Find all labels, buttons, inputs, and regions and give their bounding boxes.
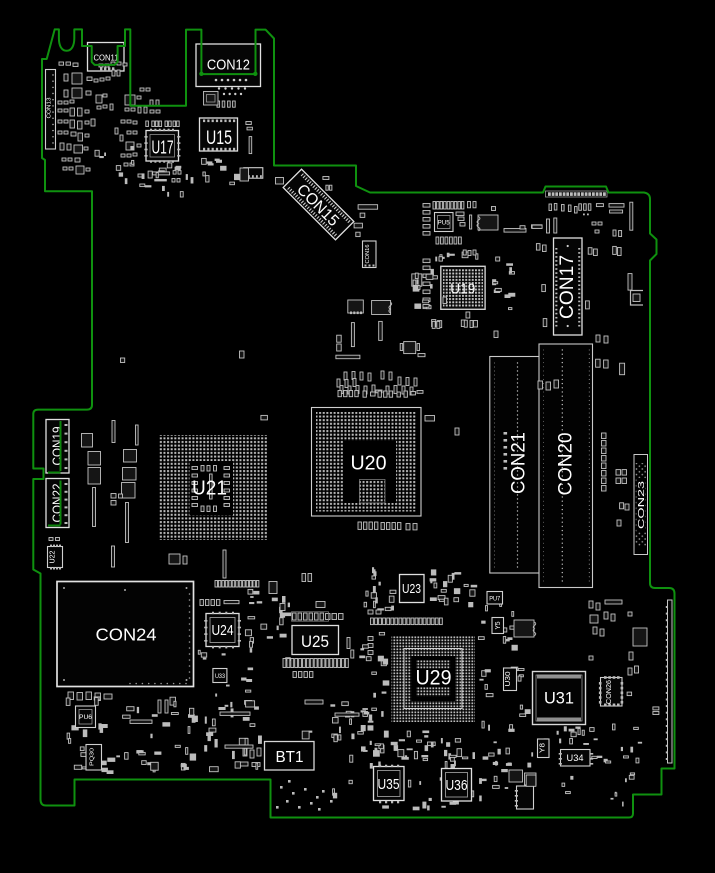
svg-text:U30: U30	[503, 672, 512, 687]
svg-text:U33: U33	[215, 673, 225, 680]
svg-text:BT1: BT1	[276, 749, 304, 766]
svg-text:CON21: CON21	[509, 432, 530, 494]
svg-text:CON12: CON12	[207, 58, 250, 74]
svg-text:CON19: CON19	[51, 426, 65, 465]
svg-text:U21: U21	[192, 477, 227, 500]
svg-text:CON13: CON13	[46, 98, 52, 119]
svg-text:U17: U17	[152, 138, 174, 158]
svg-text:CON16: CON16	[365, 244, 371, 263]
svg-text:PU7: PU7	[489, 596, 501, 602]
svg-text:U35: U35	[378, 777, 400, 793]
svg-text:PU6: PU6	[79, 714, 92, 721]
svg-text:U29: U29	[416, 667, 452, 690]
svg-text:PU5: PU5	[438, 221, 451, 227]
svg-text:U15: U15	[206, 128, 232, 149]
svg-text:U22: U22	[48, 551, 57, 564]
svg-text:U20: U20	[351, 452, 387, 475]
svg-text:CON17: CON17	[557, 255, 578, 319]
svg-text:Y8: Y8	[538, 743, 547, 753]
svg-text:U34: U34	[567, 753, 584, 764]
svg-text:CON26: CON26	[606, 680, 613, 704]
svg-text:U23: U23	[402, 582, 421, 596]
svg-text:PQ30: PQ30	[90, 748, 96, 766]
svg-text:U36: U36	[446, 778, 468, 794]
svg-text:U31: U31	[544, 689, 574, 708]
svg-text:Y5: Y5	[493, 622, 502, 630]
svg-text:U19: U19	[450, 280, 475, 297]
svg-text:U24: U24	[212, 622, 234, 639]
svg-text:U25: U25	[301, 633, 329, 651]
svg-text:CON22: CON22	[51, 483, 65, 522]
svg-text:CON24: CON24	[96, 625, 157, 645]
svg-text:CON23: CON23	[636, 481, 646, 529]
svg-text:CON11: CON11	[94, 53, 119, 63]
svg-text:CON20: CON20	[556, 433, 577, 496]
